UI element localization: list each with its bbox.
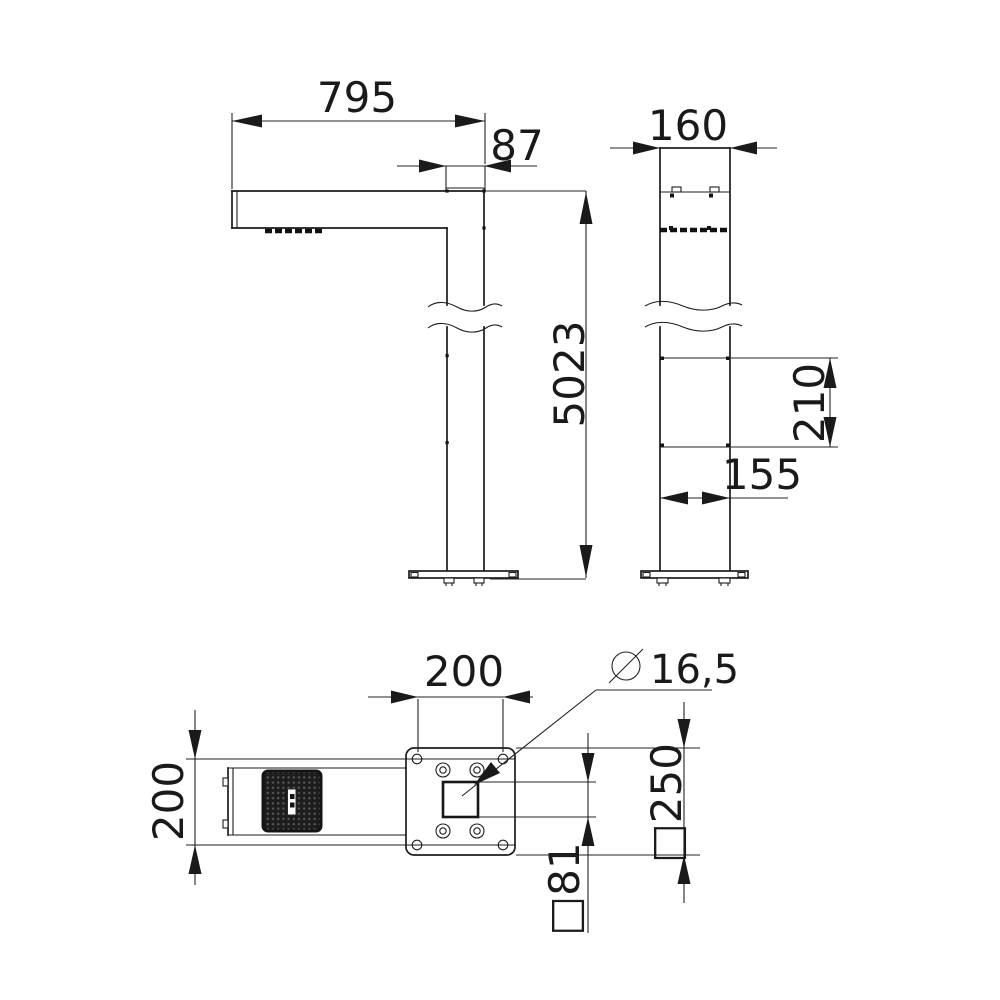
dim-lower-width: 155 [660, 450, 802, 505]
grille-center-slot [288, 789, 297, 815]
dim-pole-width: 160 [610, 101, 777, 155]
dim-total-height-label: 5023 [545, 321, 594, 428]
side-view-pole [428, 189, 502, 571]
plan-view-grille [263, 771, 321, 831]
dim-bolt-spacing: 200 [368, 647, 533, 752]
front-view-base-plate [641, 571, 748, 586]
dim-arm-width-label: 200 [144, 761, 193, 841]
dim-arm-width: 200 [144, 710, 202, 885]
plan-view: 200 200 16,5 □81 [144, 647, 739, 936]
dim-arm-length-label: 795 [317, 73, 397, 122]
side-view: 795 87 5023 [232, 73, 594, 586]
side-view-arm-outline [232, 188, 485, 228]
dim-arm-end-depth-label: 87 [490, 121, 543, 170]
dim-arm-end-depth: 87 [397, 121, 544, 190]
dim-arm-length: 795 [232, 73, 485, 189]
dim-panel-height-label: 210 [785, 363, 834, 443]
dim-panel-height: 210 [731, 358, 838, 447]
front-view-arm-end [660, 187, 730, 230]
technical-drawing-canvas: 795 87 5023 [0, 0, 1000, 1000]
hole-diameter-label: 16,5 [650, 647, 739, 693]
front-view: 160 210 155 [610, 101, 838, 586]
dim-base-plate-label: □250 [642, 743, 691, 863]
diameter-symbol-icon [609, 649, 643, 683]
dim-bolt-spacing-label: 200 [424, 647, 504, 696]
dim-lower-width-label: 155 [722, 450, 802, 499]
drawing-sheet: 795 87 5023 [0, 0, 1000, 1000]
dim-pole-section-label: □81 [540, 842, 589, 935]
dim-pole-width-label: 160 [648, 101, 728, 150]
front-view-access-panel [660, 357, 730, 448]
dim-total-height: 5023 [486, 191, 594, 579]
